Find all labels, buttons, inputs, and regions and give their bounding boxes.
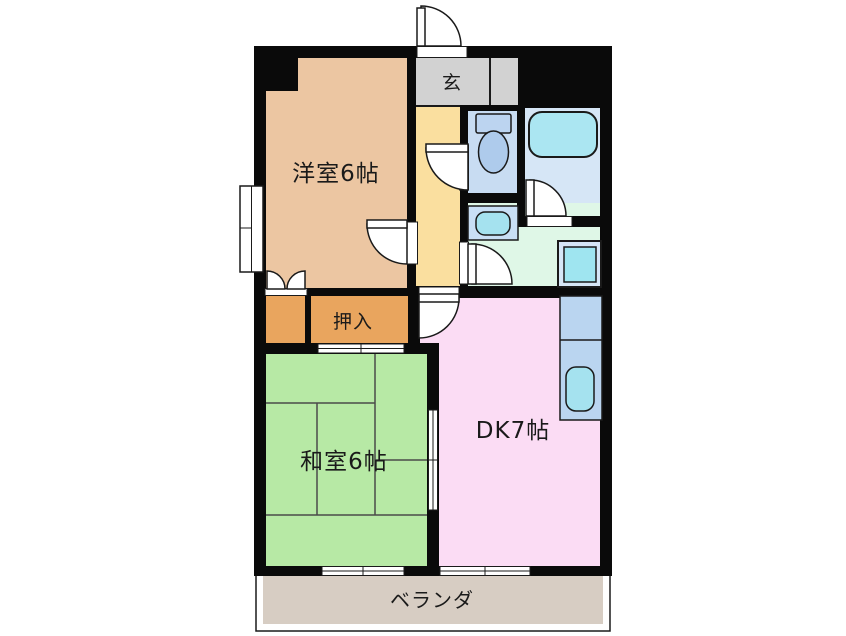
entrance-door-arc (421, 6, 461, 46)
floorplan-canvas: 洋室6帖 玄 押入 和室6帖 DK7帖 ベランダ (0, 0, 846, 636)
kitchen-sink-icon (566, 367, 594, 411)
bathtub-icon (529, 112, 597, 157)
floorplan-svg: 洋室6帖 玄 押入 和室6帖 DK7帖 ベランダ (0, 0, 846, 636)
dk-door-leaf (419, 294, 459, 302)
label-entrance: 玄 (442, 72, 462, 94)
label-closet: 押入 (333, 311, 373, 333)
label-japanese-room: 和室6帖 (300, 449, 388, 475)
bathroom-door-sill (527, 217, 572, 227)
room-entrance-hall (416, 58, 518, 106)
toilet-icon (476, 114, 511, 173)
label-dk: DK7帖 (476, 418, 550, 444)
oshiire-sliding-door (318, 344, 404, 353)
label-veranda: ベランダ (390, 588, 474, 612)
western-window (240, 186, 263, 272)
closet-small (266, 296, 305, 343)
room-hallway (416, 106, 460, 286)
entrance-door-leaf (417, 8, 425, 46)
washbasin-icon (468, 206, 518, 240)
kitchen-counter (560, 296, 602, 420)
entrance-door-sill (417, 47, 467, 58)
washroom-door-opening (460, 242, 469, 284)
washroom-door-leaf (468, 244, 476, 284)
western-door-leaf (367, 220, 407, 228)
dk-veranda-window (440, 567, 530, 576)
washing-machine-icon (558, 241, 601, 287)
japanese-dk-sliding-door (428, 410, 438, 510)
label-western-room: 洋室6帖 (292, 161, 380, 187)
bathroom-door-leaf (526, 180, 534, 216)
japanese-veranda-window (322, 567, 404, 576)
toilet-door-leaf (426, 144, 468, 152)
